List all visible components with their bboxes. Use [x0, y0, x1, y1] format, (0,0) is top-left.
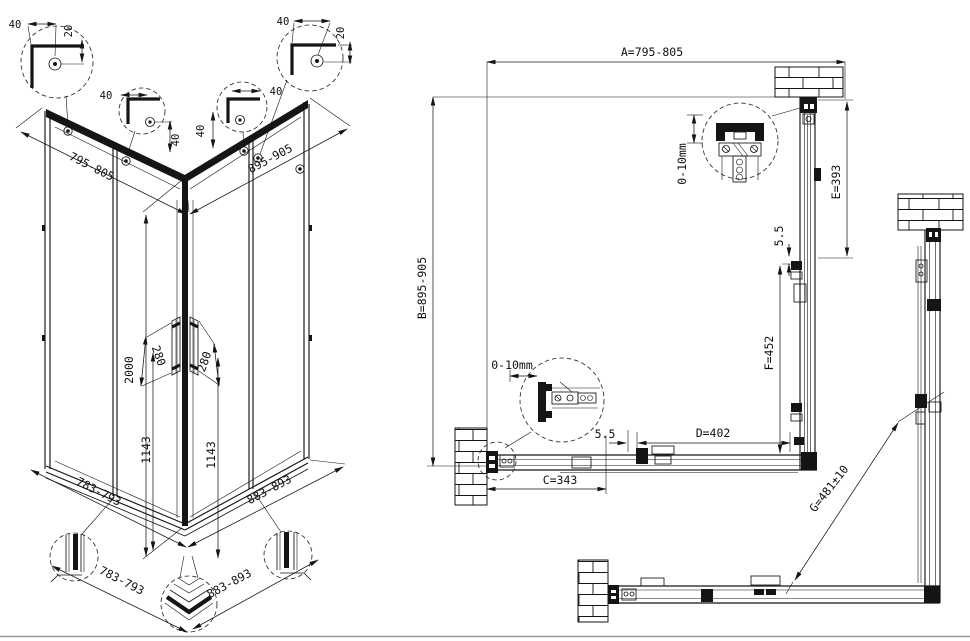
- leader-line: [180, 556, 184, 577]
- plan-detail-circle-top: 0-10mm: [675, 103, 800, 185]
- dim-c3-width: 40: [270, 86, 283, 98]
- open-rail-vertical: [915, 228, 941, 603]
- dim-base-right-lower: 883-893: [204, 566, 253, 601]
- dim-c3-offset: 40: [195, 125, 207, 138]
- dim-f-label: F=452: [762, 336, 776, 371]
- dim-width-left: 795-805: [67, 149, 117, 183]
- dim-c2-offset: 40: [170, 134, 182, 147]
- plan-rail-vertical: [791, 97, 821, 470]
- gap-bottom-label: 5.5: [595, 427, 616, 441]
- wall-anchor: [309, 225, 312, 231]
- door-handle-left: [172, 317, 180, 375]
- drawing-sheet: 40 20 40 40 40 40: [0, 0, 970, 641]
- dim-a-label: A=795-805: [621, 45, 683, 59]
- dim-c4-offset: 20: [335, 27, 347, 40]
- wall-anchor: [42, 335, 45, 341]
- wall-hatch-left2: [578, 560, 608, 622]
- dim-e-label: E=393: [829, 165, 843, 200]
- corner-post2: [924, 586, 940, 603]
- dim-c1-offset: 20: [63, 25, 75, 38]
- detail-circle-top-3: 40 40: [195, 82, 282, 148]
- dim-c-label: C=343: [543, 473, 578, 487]
- leader-line: [505, 432, 531, 448]
- leader-line: [192, 556, 198, 578]
- leader-line: [772, 108, 800, 116]
- gap-right-label: 5.5: [772, 226, 786, 247]
- dim-height: 2000: [122, 356, 136, 384]
- plan-dimensions: A=795-805 B=895-905 E=393 5.5 F=452 5.5 …: [415, 45, 944, 594]
- plan-view-open: [578, 194, 963, 622]
- plan-detail-circle-left: 0-10mm: [491, 358, 604, 448]
- wall-hatch-left: [455, 428, 487, 505]
- plan-view: 0-10mm 0-10mm A=795-805: [415, 45, 944, 594]
- dim-b-label: B=895-905: [415, 257, 429, 319]
- dim-d-label: D=402: [696, 426, 731, 440]
- adjust-label-left: 0-10mm: [491, 358, 533, 372]
- dim-c2-width: 40: [100, 90, 113, 102]
- wall-hatch-top2: [898, 194, 963, 230]
- dim-c4-width: 40: [277, 16, 290, 28]
- wall-anchor: [42, 225, 45, 231]
- plan-rail-horizontal: [478, 442, 817, 480]
- dim-handle-left: 280: [149, 343, 169, 367]
- leader-line: [82, 500, 112, 534]
- technical-drawing: 40 20 40 40 40 40: [0, 0, 970, 641]
- wall-hatch-top: [775, 67, 843, 97]
- dim-base-left-lower: 783-793: [97, 563, 147, 598]
- open-rail-horizontal: [608, 576, 940, 604]
- dim-handle-right: 280: [194, 349, 214, 373]
- detail-circle-bottom-right: [254, 492, 312, 580]
- detail-circle-top-4: 40 20: [260, 16, 352, 154]
- dim-c1-width: 40: [9, 19, 22, 31]
- detail-circle-top-1: 40 20: [9, 19, 93, 126]
- iso-view: 40 20 40 40 40 40: [9, 16, 352, 632]
- dim-door-glass-right: 1143: [204, 441, 218, 469]
- wall-anchor: [309, 335, 312, 341]
- dim-door-glass-left: 1143: [139, 436, 153, 464]
- dim-base-right-upper: 883-893: [244, 472, 293, 507]
- adjust-label-top: 0-10mm: [675, 143, 689, 185]
